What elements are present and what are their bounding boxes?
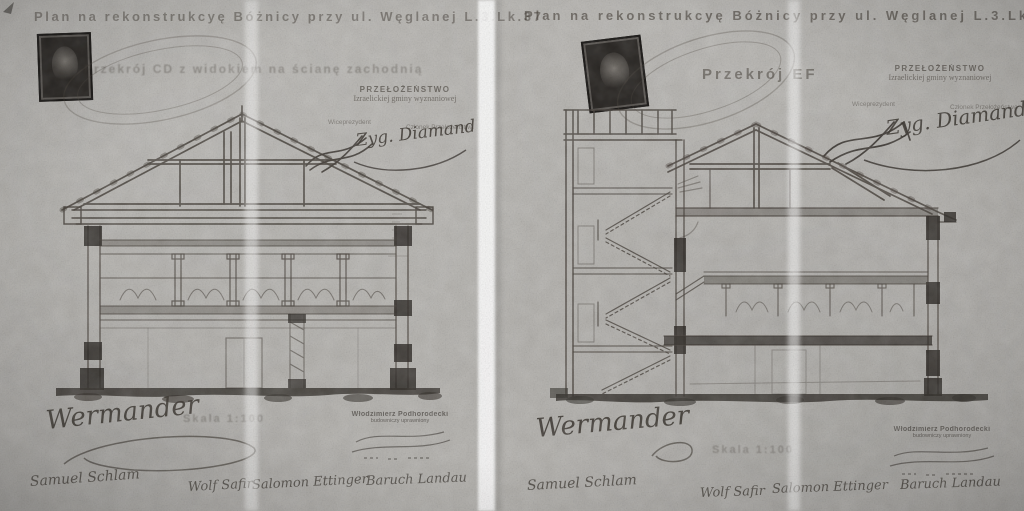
builder-title: budowniczy uprawniony — [876, 433, 1008, 439]
right-signature-1: Samuel Schlam — [527, 472, 638, 494]
right-signature-3: Salomon Ettinger — [772, 478, 888, 497]
ground-line — [550, 388, 988, 406]
authority-name: PRZEŁOŻEŃSTWO — [862, 64, 1018, 73]
scanned-plan-photo: Plan na rekonstrukcyę Bóżnicy przy ul. W… — [0, 0, 1024, 511]
builder-name: Włodzimierz Podhorodecki — [876, 426, 1008, 433]
tower-doors — [578, 148, 594, 342]
gallery-levels — [100, 240, 396, 328]
cornice — [64, 207, 433, 224]
right-authority-block: PRZEŁOŻEŃSTWO Izraelickiej gminy wyznani… — [862, 64, 1018, 82]
right-architect-flourish — [648, 436, 708, 470]
left-signature-2: Wolf Safir — [188, 477, 254, 495]
right-signature-2: Wolf Safir — [700, 484, 765, 501]
left-scale-label: Skala 1:100 — [183, 413, 265, 425]
left-signature-1: Samuel Schlam — [29, 466, 140, 490]
builder-title: budowniczy uprawniony — [336, 418, 464, 424]
right-sheet-title: Plan na rekonstrukcyę Bóżnicy przy ul. W… — [524, 8, 1024, 23]
pencil-notes — [386, 210, 426, 270]
corner-mark — [0, 0, 24, 18]
left-signature-4: Baruch Landau — [366, 470, 467, 489]
gallery-posts — [722, 284, 914, 316]
right-builder-stamp: Włodzimierz Podhorodecki budowniczy upra… — [876, 426, 1008, 439]
right-section-label: Przekrój EF — [702, 66, 818, 83]
left-builder-signature-scribble — [348, 428, 458, 462]
builder-name: Włodzimierz Podhorodecki — [336, 411, 464, 418]
sheet-gap-highlight — [478, 0, 495, 511]
sheet-edge-shadow — [496, 0, 501, 511]
purlin-marks — [668, 124, 938, 212]
left-section-label: Przekrój CD z widokiem na ścianę zachodn… — [84, 62, 423, 76]
gallery-columns — [172, 254, 349, 306]
left-builder-stamp: Włodzimierz Podhorodecki budowniczy upra… — [336, 411, 464, 424]
lower-hall — [690, 345, 920, 394]
section-drawing-ef — [540, 88, 1020, 438]
right-scale-label: Skala 1:100 — [712, 444, 794, 456]
purlin-marks — [62, 114, 432, 210]
roof-truss — [62, 106, 432, 210]
main-floor-band — [664, 336, 932, 345]
balustrade-ornaments — [120, 289, 385, 300]
ground-floor — [148, 314, 358, 388]
balustrade-ornaments — [736, 302, 903, 312]
right-signature-4: Baruch Landau — [900, 474, 1001, 493]
left-sheet-title: Plan na rekonstrukcyę Bóżnicy przy ul. W… — [34, 9, 543, 24]
stair-tower — [564, 110, 682, 396]
authority-subtitle: Izraelickiej gminy wyznaniowej — [862, 73, 1018, 82]
roof-truss — [668, 124, 956, 220]
